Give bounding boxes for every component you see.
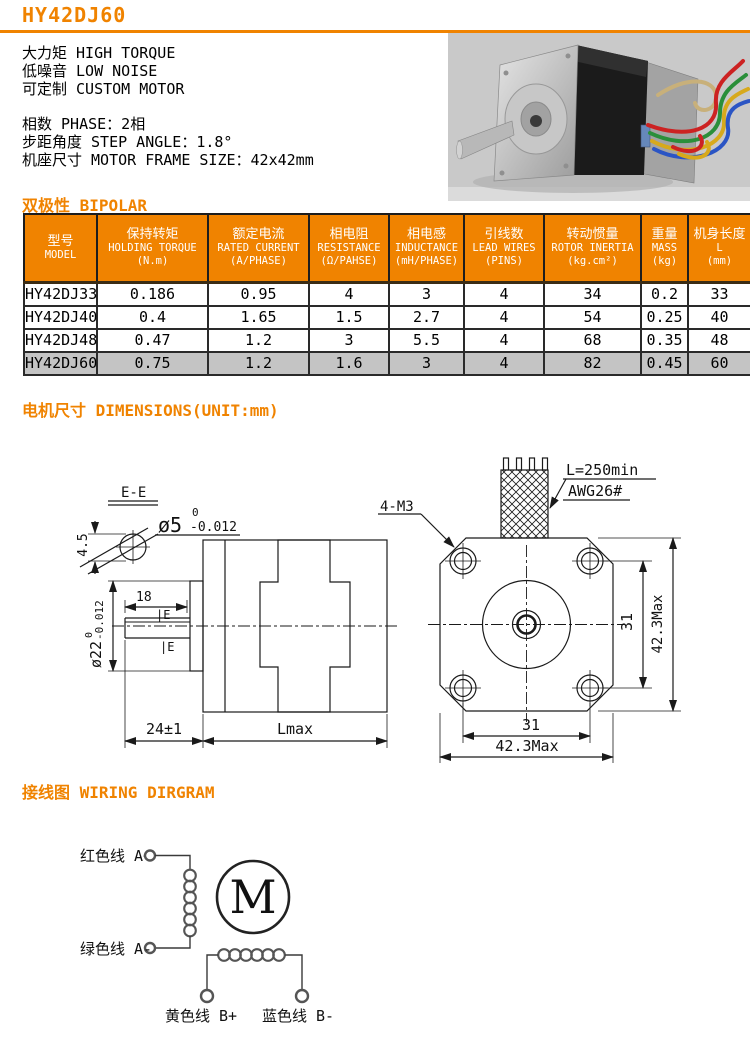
frame-size-label-right: 42.3Max [650, 594, 666, 653]
page-title: HY42DJ60 [22, 3, 126, 27]
terminal-a-plus [145, 851, 155, 861]
cell: 4 [464, 329, 544, 352]
cell-model: HY42DJ40 [24, 306, 97, 329]
spec-line: 机座尺寸 MOTOR FRAME SIZE：42x42mm [22, 151, 314, 169]
col-header-lead-wires: 引线数LEAD WIRES(PINS) [464, 214, 544, 282]
cell: 33 [688, 282, 750, 306]
col-header-mass: 重量MASS(kg) [641, 214, 688, 282]
cell: 54 [544, 306, 641, 329]
feature-line: 可定制 CUSTOM MOTOR [22, 80, 314, 98]
section-title-wiring: 接线图 WIRING DIRGRAM [22, 779, 215, 803]
cell: 1.6 [309, 352, 389, 375]
phase-b-positive-label: 黄色线 B+ [165, 1007, 237, 1025]
cell: 3 [389, 352, 464, 375]
col-header-holding-torque: 保持转矩HOLDING TORQUE(N.m) [97, 214, 208, 282]
cell: 60 [688, 352, 750, 375]
col-header-resistance: 相电阻RESISTANCE(Ω/PAHSE) [309, 214, 389, 282]
cell: 0.47 [97, 329, 208, 352]
cell: 4 [464, 352, 544, 375]
boss-diameter-label: ø22 [87, 641, 105, 668]
datum-flag: |E [160, 640, 174, 654]
cell: 0.4 [97, 306, 208, 329]
flat-length-label: 18 [136, 590, 152, 605]
spec-table: 型号MODEL 保持转矩HOLDING TORQUE(N.m) 额定电流RATE… [23, 213, 750, 376]
cell: 1.5 [309, 306, 389, 329]
table-row: HY42DJ40 0.4 1.65 1.5 2.7 4 54 0.25 40 [24, 306, 750, 329]
frame-size-label-bottom: 42.3Max [495, 737, 558, 755]
datasheet-page: HY42DJ60 大力矩 HIGH TORQUE 低噪音 LOW NOISE 可… [0, 0, 750, 1044]
hole-pitch-label-right: 31 [618, 613, 636, 631]
wiring-diagram: 红色线 A+ 绿色线 A- M 黄色线 B+ 蓝色线 B- [40, 830, 400, 1044]
lead-length-label: L=250min [566, 461, 638, 479]
terminal-b-minus [296, 990, 308, 1002]
header-row: 型号MODEL 保持转矩HOLDING TORQUE(N.m) 额定电流RATE… [24, 214, 750, 282]
cell: 0.35 [641, 329, 688, 352]
table-row: HY42DJ48 0.47 1.2 3 5.5 4 68 0.35 48 [24, 329, 750, 352]
shaft-diameter-label: ø5 [158, 513, 182, 537]
cell-model: HY42DJ33 [24, 282, 97, 306]
col-header-length: 机身长度L(mm) [688, 214, 750, 282]
spacer [22, 98, 314, 115]
cell: 4 [464, 282, 544, 306]
cell: 0.75 [97, 352, 208, 375]
phase-b-negative-label: 蓝色线 B- [262, 1007, 334, 1025]
cell: 0.45 [641, 352, 688, 375]
phase-a-positive-label: 红色线 A+ [80, 847, 152, 865]
cell: 4 [309, 282, 389, 306]
datum-flag: |E [156, 608, 170, 622]
feature-line: 低噪音 LOW NOISE [22, 62, 314, 80]
col-header-rotor-inertia: 转动惯量ROTOR INERTIA(kg.cm²) [544, 214, 641, 282]
col-header-model: 型号MODEL [24, 214, 97, 282]
cell: 4 [464, 306, 544, 329]
section-ee-label: E-E [121, 485, 146, 501]
spec-line: 相数 PHASE：2相 [22, 115, 314, 133]
flat-height-label: 4.5 [76, 533, 91, 556]
phase-a-negative-label: 绿色线 A- [80, 940, 152, 958]
cell: 5.5 [389, 329, 464, 352]
body-length-label: Lmax [277, 720, 313, 738]
table-row: HY42DJ33 0.186 0.95 4 3 4 34 0.2 33 [24, 282, 750, 306]
terminal-b-plus [201, 990, 213, 1002]
col-header-inductance: 相电感INDUCTANCE(mH/PHASE) [389, 214, 464, 282]
phase-b-coil [218, 949, 285, 961]
cell: 2.7 [389, 306, 464, 329]
cell: 0.95 [208, 282, 309, 306]
lead-gauge-label: AWG26# [568, 482, 622, 500]
cell: 82 [544, 352, 641, 375]
feature-line: 大力矩 HIGH TORQUE [22, 44, 314, 62]
dimensions-drawing: E-E ø5 0 -0.012 4.5 18 [0, 440, 750, 780]
cell: 1.2 [208, 352, 309, 375]
spec-line: 步距角度 STEP ANGLE：1.8° [22, 133, 314, 151]
section-title-dimensions: 电机尺寸 DIMENSIONS(UNIT:mm) [22, 397, 279, 421]
cell-model: HY42DJ48 [24, 329, 97, 352]
cell: 1.2 [208, 329, 309, 352]
mount-holes-label: 4-M3 [380, 499, 414, 515]
table-row-highlighted: HY42DJ60 0.75 1.2 1.6 3 4 82 0.45 60 [24, 352, 750, 375]
shaft-tol-upper: 0 [192, 506, 199, 519]
hole-pitch-label-bottom: 31 [522, 716, 540, 734]
cell: 34 [544, 282, 641, 306]
cell: 1.65 [208, 306, 309, 329]
motor-symbol-letter: M [229, 870, 276, 924]
boss-tol-lower: -0.012 [93, 600, 106, 640]
cell: 3 [389, 282, 464, 306]
shaft-length-label: 24±1 [146, 720, 182, 738]
side-view: E-E ø5 0 -0.012 4.5 18 [76, 485, 398, 748]
cell: 68 [544, 329, 641, 352]
cell: 0.25 [641, 306, 688, 329]
cell: 0.2 [641, 282, 688, 306]
phase-a-coil [184, 870, 196, 937]
shaft-tol-lower: -0.012 [190, 520, 237, 535]
col-header-rated-current: 额定电流RATED CURRENT(A/PHASE) [208, 214, 309, 282]
product-photo [448, 33, 750, 201]
cell: 40 [688, 306, 750, 329]
front-view: 4-M3 L=250min AWG26# 31 42.3Max 31 42.3M… [378, 458, 681, 763]
cell-model: HY42DJ60 [24, 352, 97, 375]
cell: 3 [309, 329, 389, 352]
cell: 0.186 [97, 282, 208, 306]
intro-text: 大力矩 HIGH TORQUE 低噪音 LOW NOISE 可定制 CUSTOM… [22, 44, 314, 169]
cell: 48 [688, 329, 750, 352]
